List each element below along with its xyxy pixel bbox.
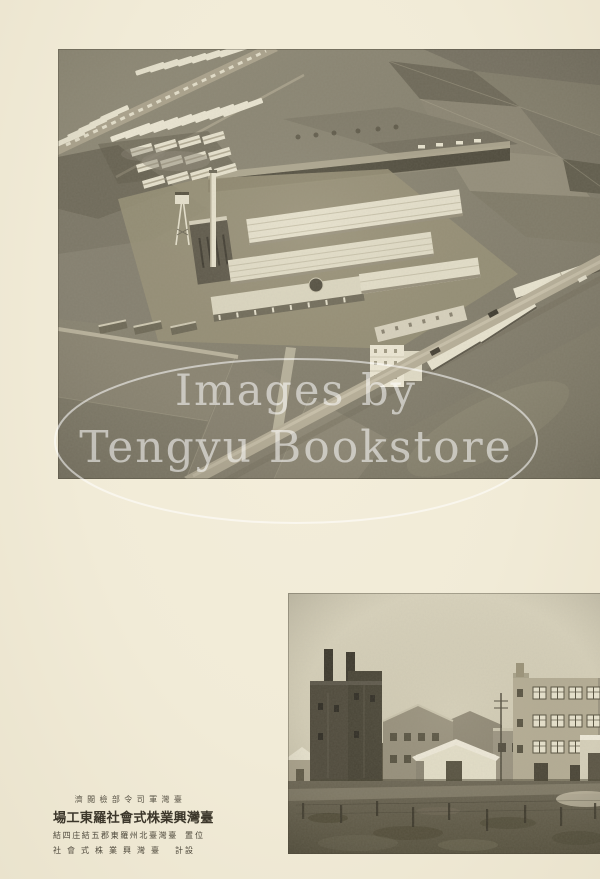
designer-label: 計設	[175, 845, 195, 856]
aerial-photograph	[58, 49, 600, 479]
designer-value: 社會式株業興灣臺	[53, 845, 165, 856]
location-line: 結四庄結五郡東羅州北臺灣臺 置位	[53, 830, 205, 841]
location-value: 結四庄結五郡東羅州北臺灣臺	[53, 830, 178, 841]
photo-grain	[288, 593, 600, 854]
factory-title: 場工東羅社會式株業興灣臺	[53, 807, 206, 826]
photo-grain	[58, 49, 600, 479]
designer-line: 社會式株業興灣臺 計設	[53, 845, 195, 856]
scanned-book-page: Images by Tengyu Bookstore	[0, 0, 600, 879]
caption-block: 濟閲檢部令司軍灣臺 場工東羅社會式株業興灣臺 結四庄結五郡東羅州北臺灣臺 置位 …	[53, 794, 206, 856]
censor-stamp-line: 濟閲檢部令司軍灣臺	[55, 794, 206, 805]
location-label: 置位	[185, 830, 205, 841]
ground-level-photograph	[288, 593, 600, 854]
